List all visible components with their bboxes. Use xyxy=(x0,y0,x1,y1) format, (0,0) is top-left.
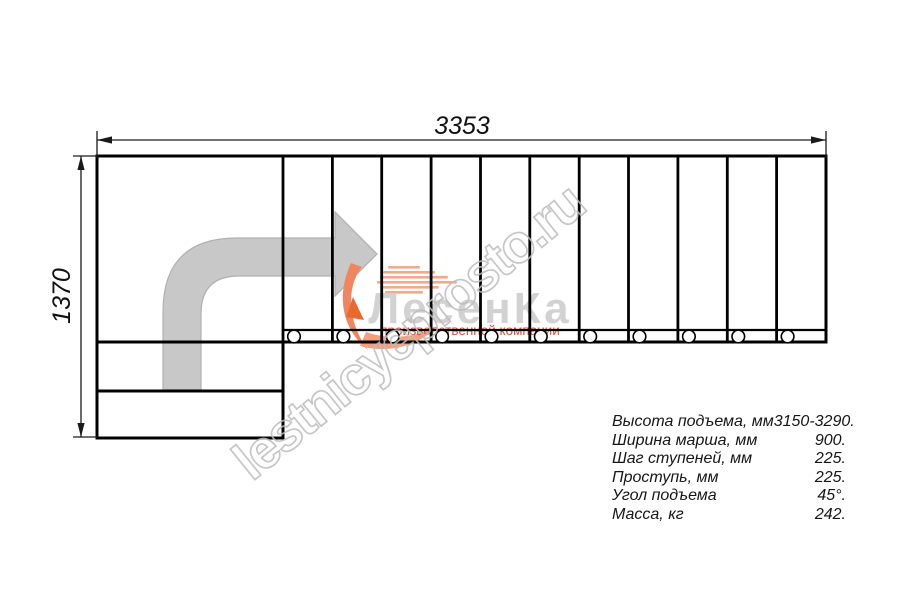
dim-arrow-right-icon xyxy=(811,136,826,143)
spec-row: Масса, кг 242. xyxy=(612,506,846,525)
spec-row: Угол подъема 45°. xyxy=(612,487,846,506)
baluster-circle xyxy=(732,330,745,343)
baluster-circle xyxy=(535,330,548,343)
spec-label: Угол подъема xyxy=(612,487,717,506)
height-dimension-value: 1370 xyxy=(48,268,76,324)
baluster-circle xyxy=(288,330,301,343)
spec-label: Ширина марша, мм xyxy=(612,432,757,451)
dim-arrow-left-icon xyxy=(97,136,112,143)
width-dimension-value: 3353 xyxy=(434,112,490,140)
baluster-circle xyxy=(683,330,696,343)
dim-arrow-up-icon xyxy=(77,156,84,170)
spec-label: Высота подъема, мм xyxy=(612,413,774,432)
baluster-circle xyxy=(584,330,597,343)
spec-table: Высота подъема, мм 3150-3290. Ширина мар… xyxy=(612,413,846,524)
baluster-circle xyxy=(485,330,498,343)
spec-row: Шаг ступеней, мм 225. xyxy=(612,450,846,469)
baluster-circle xyxy=(337,330,350,343)
spec-value: 242. xyxy=(815,506,846,525)
spec-row: Ширина марша, мм 900. xyxy=(612,432,846,451)
spec-label: Масса, кг xyxy=(612,506,684,525)
spec-value: 225. xyxy=(815,450,846,469)
stair-drawing-page: ЛесенКа производственной компании xyxy=(0,0,900,600)
baluster-circle xyxy=(633,330,646,343)
spec-value: 225. xyxy=(815,469,846,488)
spec-label: Проступь, мм xyxy=(612,469,718,488)
spec-value: 900. xyxy=(815,432,846,451)
spec-row: Высота подъема, мм 3150-3290. xyxy=(612,413,846,432)
spec-value: 45°. xyxy=(817,487,846,506)
dim-arrow-down-icon xyxy=(77,423,84,437)
spec-label: Шаг ступеней, мм xyxy=(612,450,752,469)
spec-value: 3150-3290. xyxy=(774,413,855,432)
spec-row: Проступь, мм 225. xyxy=(612,469,846,488)
baluster-circle xyxy=(781,330,794,343)
